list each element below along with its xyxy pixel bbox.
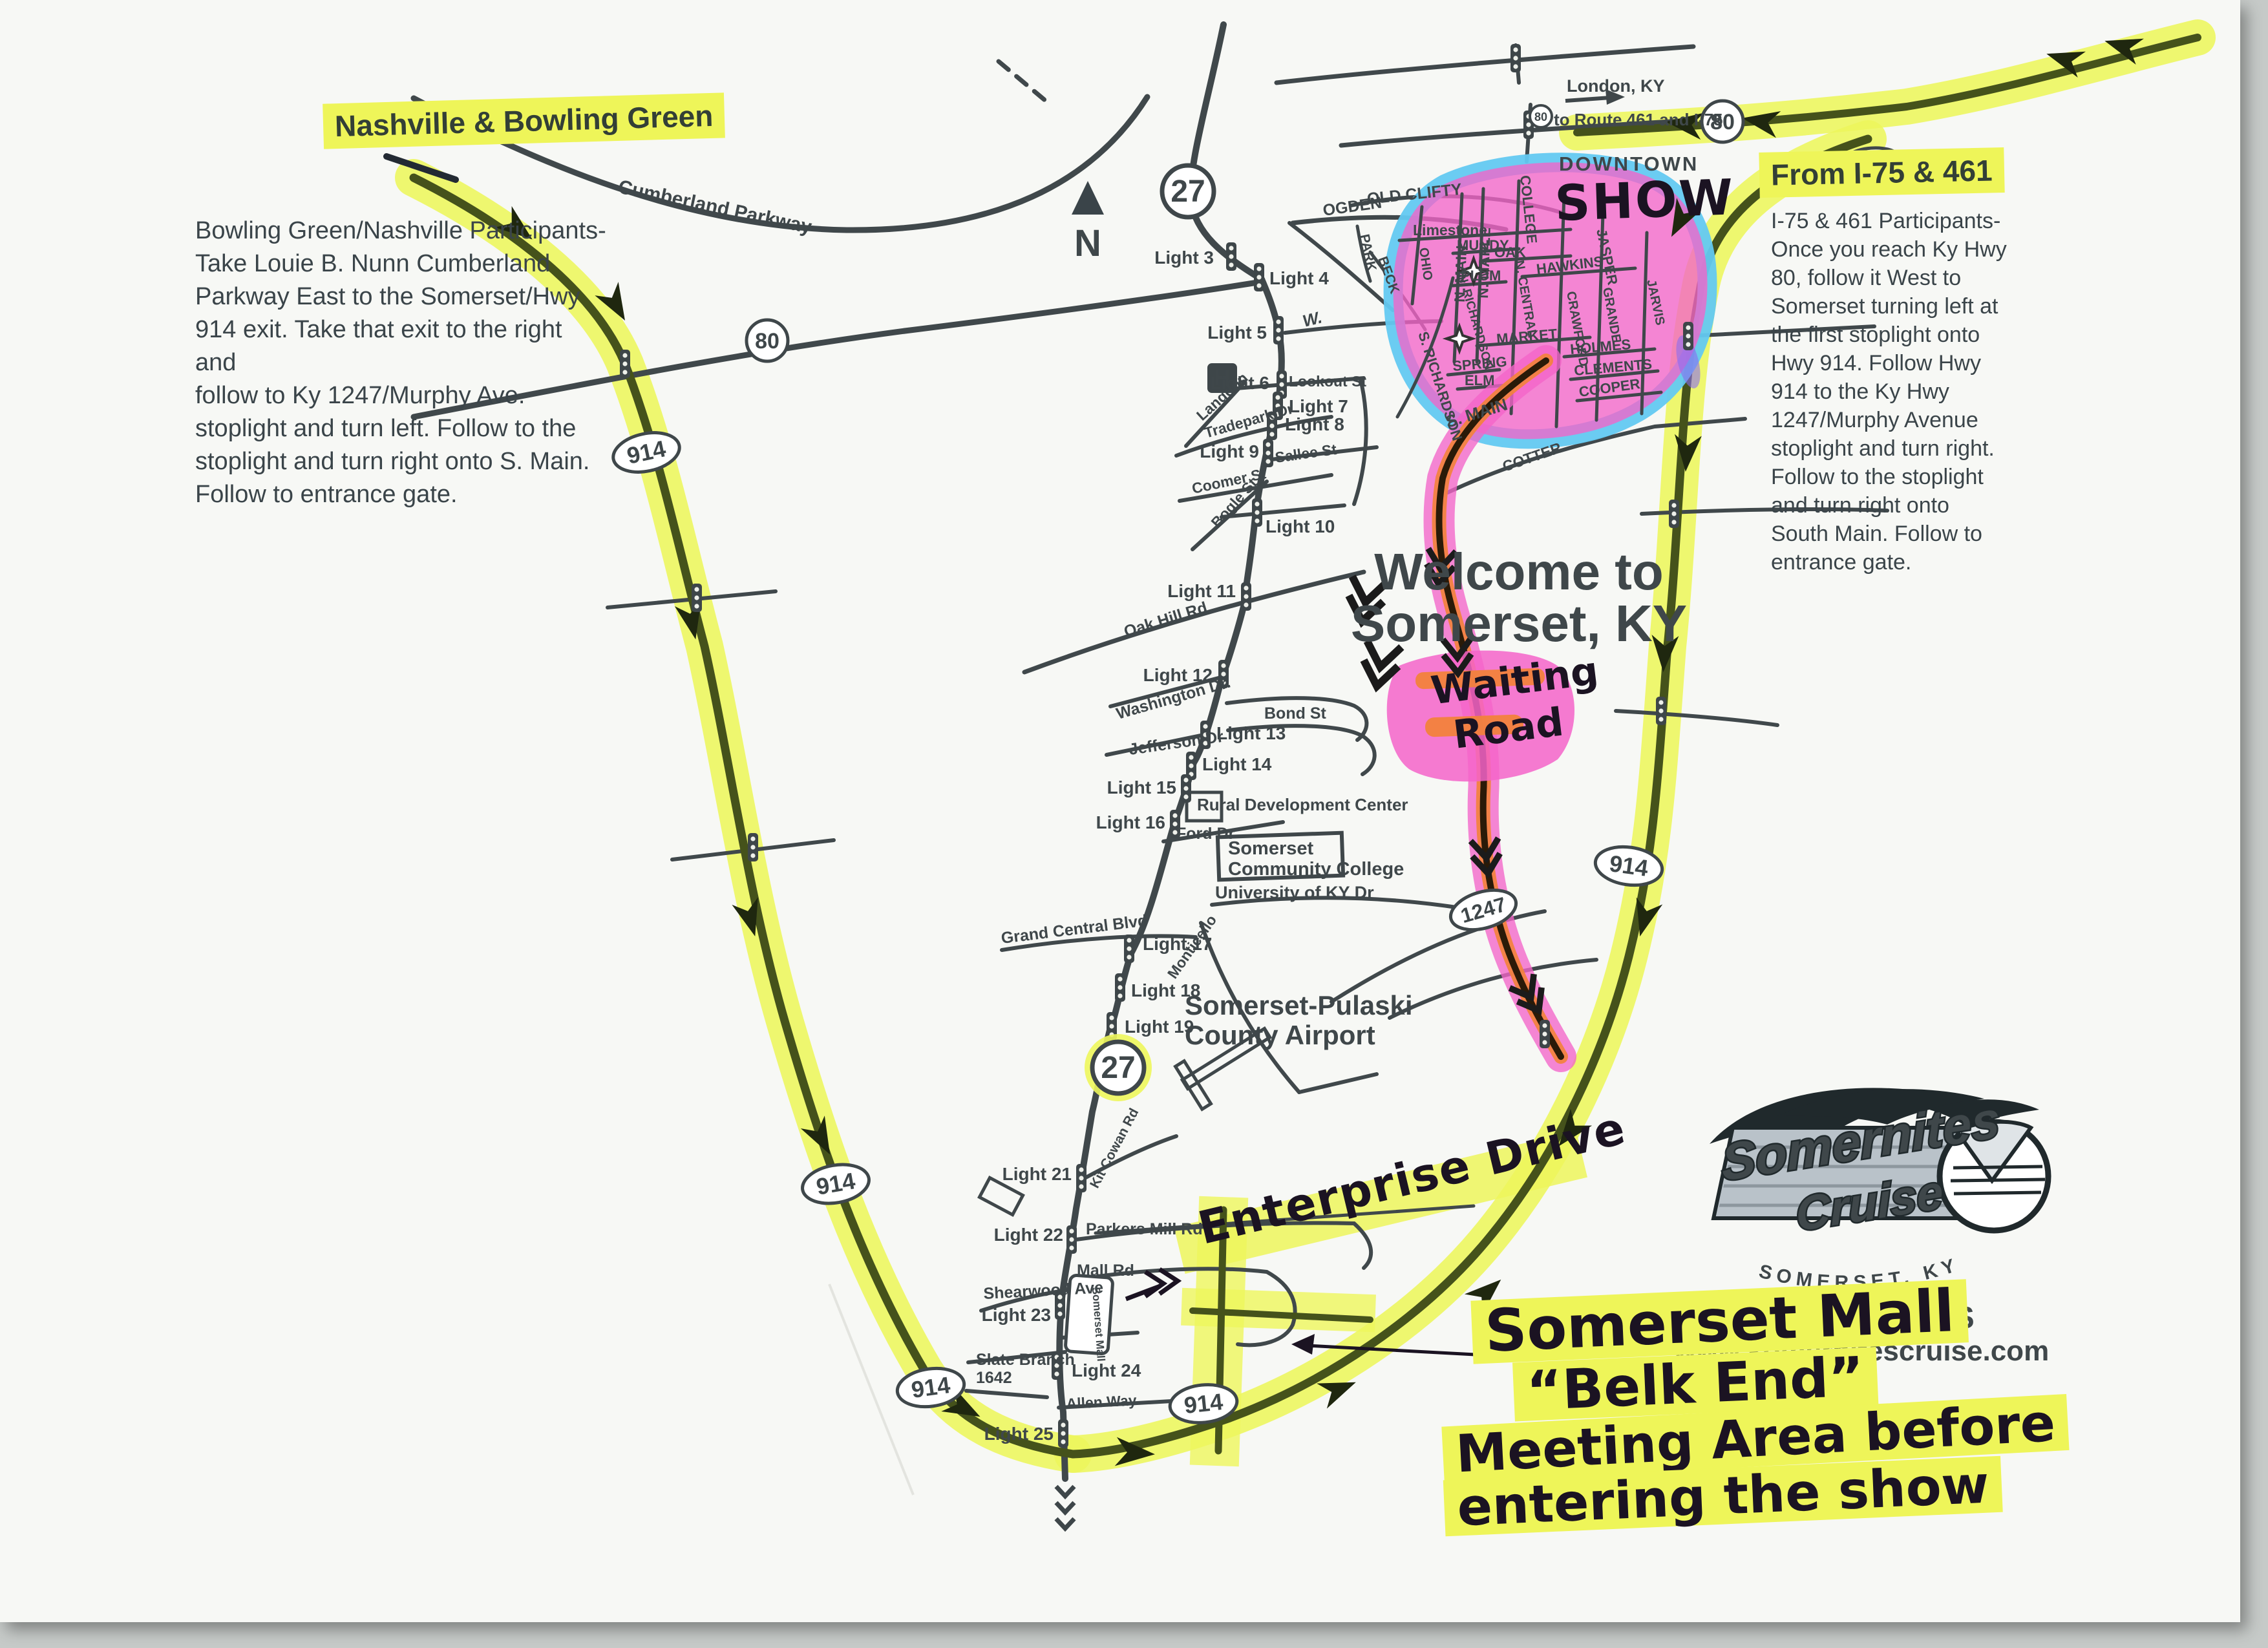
light-label-8: Light 8 bbox=[1285, 414, 1344, 434]
traffic-light-icon bbox=[1124, 935, 1134, 963]
continue-chevrons bbox=[1056, 1486, 1074, 1528]
handwritten-show: SHOW bbox=[1554, 168, 1736, 232]
heading-from-i75: From I-75 & 461 bbox=[1759, 147, 2004, 198]
shield-914-label: 914 bbox=[909, 1371, 951, 1403]
street-label-allen-way: Allen Way bbox=[1066, 1391, 1137, 1412]
place-label-airport1: Somerset-Pulaski bbox=[1185, 990, 1413, 1020]
handwritten-mall-note: Somerset Mall “Belk End” Meeting Area be… bbox=[1439, 1280, 2071, 1532]
light-label-16: Light 16 bbox=[1096, 812, 1165, 832]
light-label-12: Light 12 bbox=[1143, 665, 1213, 685]
place-label-rural: Rural Development Center bbox=[1197, 795, 1408, 814]
chevron bbox=[1056, 1503, 1074, 1512]
shield-27-north: 27 bbox=[1162, 165, 1214, 217]
shield-27-south: 27 bbox=[1085, 1034, 1152, 1101]
north-arrow-icon bbox=[1072, 181, 1104, 215]
shield-80-west: 80 bbox=[747, 320, 788, 361]
street-label-oak-hill: Oak Hill Rd bbox=[1122, 598, 1210, 641]
traffic-light-icon bbox=[1254, 263, 1264, 291]
light-label-23: Light 23 bbox=[982, 1305, 1051, 1325]
traffic-light-icon bbox=[1181, 774, 1191, 803]
welcome-line2: Somerset, KY bbox=[1351, 595, 1687, 652]
traffic-light-icon bbox=[1273, 316, 1284, 344]
traffic-light-icon bbox=[1226, 242, 1236, 271]
light-label-4: Light 4 bbox=[1269, 268, 1329, 288]
traffic-light-icon bbox=[1066, 1225, 1077, 1254]
traffic-light-icon bbox=[1058, 1419, 1068, 1448]
street-label-oak: OAK bbox=[1494, 244, 1526, 260]
label-route-note: to Route 461 and I-75 bbox=[1554, 110, 1723, 129]
directions-i75: I-75 & 461 Participants- Once you reach … bbox=[1771, 207, 2030, 576]
light-label-10: Light 10 bbox=[1266, 516, 1335, 536]
shield-80-label: 80 bbox=[1534, 111, 1547, 123]
traffic-light-icon bbox=[1076, 1164, 1086, 1192]
shield-80-small: 80 bbox=[1530, 105, 1552, 127]
road-1642 bbox=[966, 1391, 1047, 1397]
traffic-light-icon bbox=[1510, 44, 1521, 72]
light-label-17: Light 17 bbox=[1143, 934, 1212, 954]
traffic-light-icon bbox=[620, 350, 630, 378]
light-label-25: Light 25 bbox=[984, 1424, 1054, 1444]
road-airport-access bbox=[1299, 1074, 1377, 1092]
traffic-light-icon bbox=[1540, 1020, 1550, 1048]
traffic-light-icon bbox=[1669, 500, 1679, 528]
chevron bbox=[1056, 1486, 1074, 1496]
heading-i75-text: From I-75 & 461 bbox=[1759, 147, 2004, 198]
street-label-bond: Bond St bbox=[1264, 704, 1326, 723]
place-label-airport2: County Airport bbox=[1185, 1020, 1375, 1050]
street-label-park: PARK bbox=[1357, 233, 1379, 272]
light-label-7: Light 7 bbox=[1289, 396, 1348, 416]
label-london: London, KY bbox=[1567, 76, 1664, 96]
light-label-13: Light 13 bbox=[1216, 723, 1286, 743]
traffic-light-icon bbox=[1252, 498, 1262, 527]
directions-bowling-green: Bowling Green/Nashville Participants- Ta… bbox=[195, 215, 609, 511]
welcome-line1: Welcome to bbox=[1374, 543, 1664, 600]
street-label-parkers-mill: Parkers Mill Rd bbox=[1086, 1220, 1203, 1238]
street-label-elm: ELM bbox=[1465, 372, 1494, 388]
arrow-line bbox=[1565, 98, 1611, 101]
paper-crease bbox=[562, 1551, 1092, 1580]
shield-914-label: 914 bbox=[1183, 1388, 1224, 1419]
shield-27-label: 27 bbox=[1101, 1051, 1135, 1085]
road-link2 bbox=[1354, 379, 1366, 504]
light-label-9: Light 9 bbox=[1200, 441, 1259, 461]
street-label-lookout: Lookout St bbox=[1289, 373, 1366, 390]
traffic-light-icon bbox=[1115, 973, 1125, 1002]
traffic-light-icon bbox=[1263, 439, 1273, 467]
traffic-light-icon bbox=[1683, 322, 1693, 350]
light-label-24: Light 24 bbox=[1072, 1360, 1141, 1380]
traffic-light-icon bbox=[748, 833, 758, 861]
street-label-cumberland: Cumberland Parkway bbox=[617, 176, 814, 238]
light-label-15: Light 15 bbox=[1107, 777, 1176, 798]
road-dashed-stub bbox=[999, 61, 1050, 105]
compass-n-label: N bbox=[1074, 222, 1101, 264]
light-label-3: Light 3 bbox=[1154, 248, 1214, 268]
shield-80-label: 80 bbox=[755, 329, 779, 354]
street-label-sallee: Sallee St bbox=[1274, 441, 1338, 466]
street-label-kit-cowan: Kit Cowan Rd bbox=[1087, 1106, 1141, 1190]
place-label-college1: Somerset bbox=[1228, 838, 1314, 859]
chevron bbox=[1056, 1519, 1074, 1528]
street-label-slate-branch: Slate Branch bbox=[976, 1351, 1075, 1369]
arrow-head bbox=[1291, 1334, 1315, 1355]
light-label-14: Light 14 bbox=[1202, 754, 1272, 774]
shield-27-label: 27 bbox=[1171, 174, 1205, 209]
street-label-1642: 1642 bbox=[976, 1369, 1012, 1387]
street-label-mall-rd: Mall Rd bbox=[1077, 1262, 1134, 1280]
light-label-6: Light 6 bbox=[1210, 373, 1269, 393]
traffic-light-icon bbox=[1656, 697, 1666, 725]
light-label-11: Light 11 bbox=[1167, 581, 1236, 601]
street-label-ford: Ford Dr bbox=[1176, 825, 1235, 843]
light-label-5: Light 5 bbox=[1207, 322, 1267, 343]
place-label-college2: Community College bbox=[1228, 859, 1404, 880]
light-label-22: Light 22 bbox=[994, 1225, 1063, 1245]
place-label-university: University of KY Dr bbox=[1215, 883, 1374, 902]
light-label-21: Light 21 bbox=[1002, 1164, 1072, 1184]
compass: N bbox=[1072, 181, 1104, 264]
road-hwy27-north bbox=[1191, 25, 1262, 279]
road-cross-east3 bbox=[1616, 711, 1777, 725]
traffic-light-icon bbox=[692, 584, 702, 612]
light-label-19: Light 19 bbox=[1125, 1017, 1194, 1037]
road-airport-ne2 bbox=[1390, 960, 1596, 1018]
traffic-light-icon bbox=[1241, 582, 1251, 611]
shield-914-label: 914 bbox=[1607, 850, 1649, 882]
